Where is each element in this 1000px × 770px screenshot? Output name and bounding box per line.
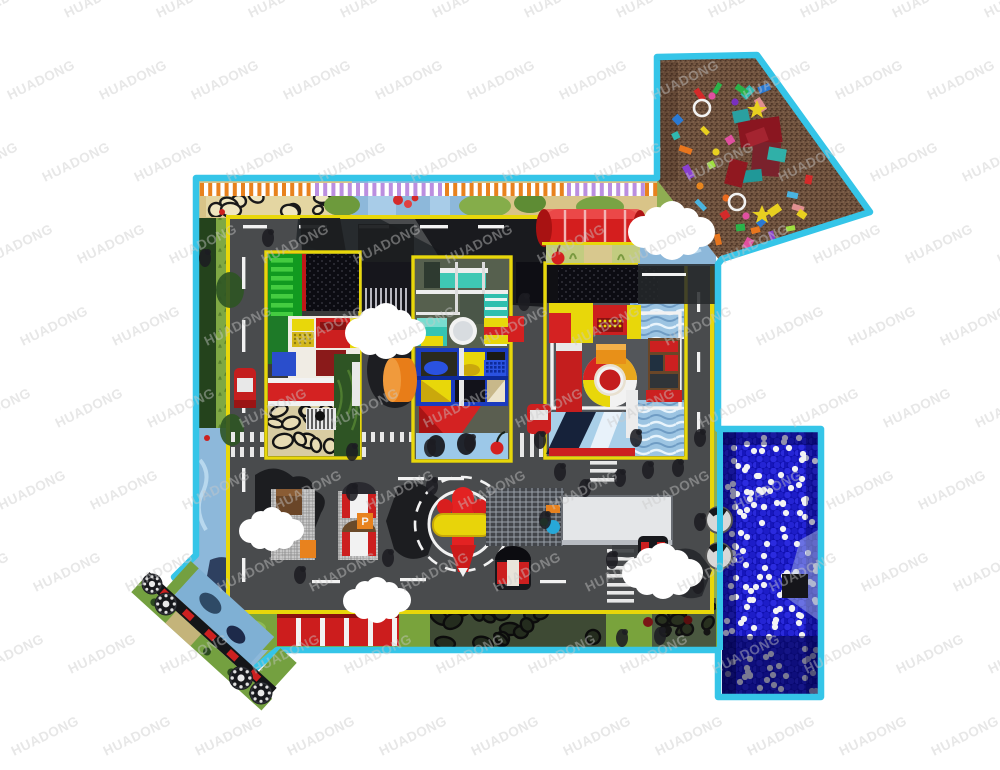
svg-text:P: P	[361, 516, 368, 528]
